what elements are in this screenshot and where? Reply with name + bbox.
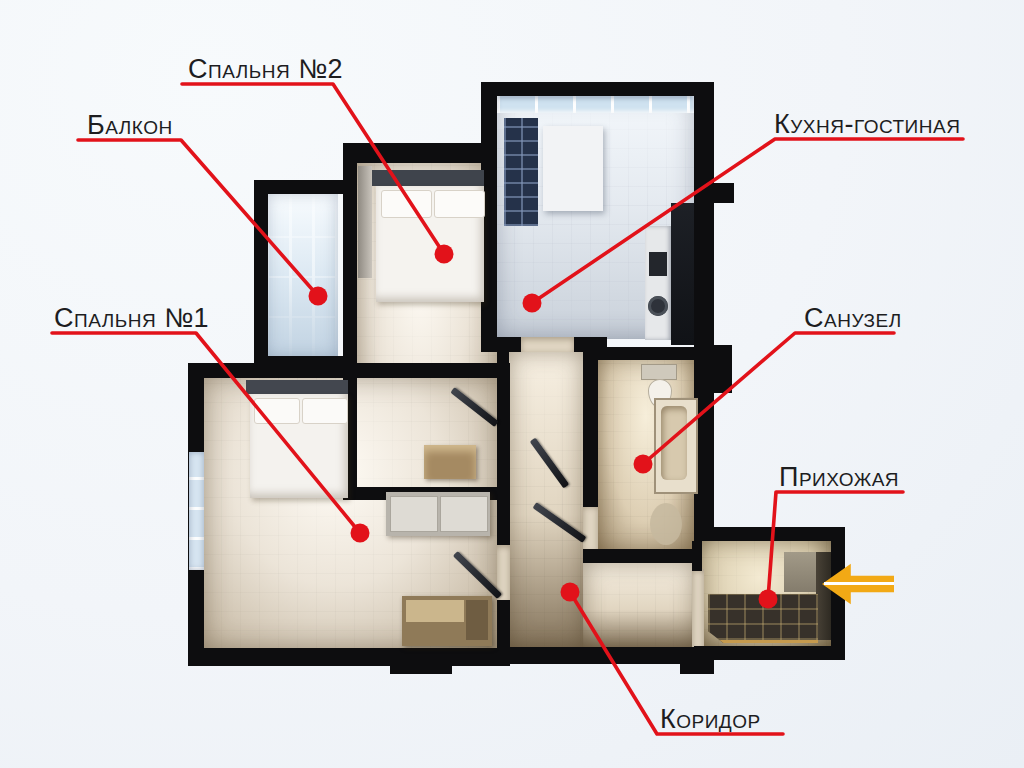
pillow bbox=[434, 190, 485, 218]
room-label-bedroom2: Спальня №2 bbox=[188, 55, 343, 83]
hall-closet bbox=[784, 552, 818, 592]
entrance-arrow-wrap bbox=[822, 562, 894, 606]
entrance-mat bbox=[708, 594, 818, 643]
entrance-arrow-stripe bbox=[824, 582, 894, 585]
wall-segment bbox=[694, 527, 845, 541]
sofa-cushion bbox=[440, 496, 488, 532]
wall-segment bbox=[343, 143, 493, 163]
floor-balcony bbox=[266, 192, 338, 358]
desk-side bbox=[466, 600, 488, 640]
wall-segment bbox=[712, 345, 732, 393]
desk-top bbox=[406, 600, 464, 622]
wall-segment bbox=[583, 347, 598, 507]
bath-rug bbox=[650, 503, 682, 545]
sofa-cushion bbox=[390, 496, 438, 532]
room-label-bedroom1: Спальня №1 bbox=[54, 304, 209, 332]
bench bbox=[424, 445, 476, 479]
kitchen-cabinet bbox=[504, 118, 538, 226]
room-label-kitchen: Кухня-гостиная bbox=[774, 110, 960, 138]
bathtub-basin bbox=[661, 406, 687, 480]
room-label-balcony: Балкон bbox=[87, 111, 173, 139]
wall-segment bbox=[692, 541, 702, 571]
washing-machine-door bbox=[648, 296, 668, 316]
pillow bbox=[302, 398, 348, 424]
wall-segment bbox=[254, 180, 268, 370]
doorway-bathroom bbox=[583, 505, 598, 551]
room-label-corridor: Коридор bbox=[660, 705, 761, 733]
wall-segment bbox=[188, 363, 510, 378]
bedroom1-window bbox=[189, 452, 204, 570]
doorway-kitchen bbox=[521, 337, 574, 352]
wall-segment bbox=[254, 180, 354, 194]
kitchen-table bbox=[543, 126, 603, 211]
bed-headboard bbox=[372, 170, 484, 186]
kitchen-window bbox=[497, 96, 694, 113]
washing-machine-panel bbox=[649, 252, 667, 276]
wall-segment bbox=[583, 549, 694, 563]
bed-headboard bbox=[246, 380, 348, 394]
floor-corridor bbox=[508, 350, 584, 649]
wall-segment bbox=[694, 646, 845, 660]
wall-segment bbox=[714, 183, 734, 203]
wall-segment bbox=[497, 378, 510, 545]
room-label-hallway: Прихожая bbox=[779, 463, 899, 491]
wall-segment bbox=[188, 648, 510, 666]
floor-corridor-east bbox=[583, 561, 696, 649]
wall-segment bbox=[497, 600, 510, 648]
pillow bbox=[381, 190, 432, 218]
wall-segment bbox=[481, 82, 714, 96]
wall-segment bbox=[497, 647, 694, 664]
wall-segment bbox=[680, 660, 714, 674]
wall-segment bbox=[390, 660, 452, 674]
wall-segment bbox=[590, 347, 714, 360]
wall-segment bbox=[483, 337, 521, 352]
pillow bbox=[254, 398, 300, 424]
room-label-bathroom: Санузел bbox=[804, 304, 902, 332]
doorway-entrance bbox=[692, 569, 704, 648]
tall-cabinet bbox=[671, 203, 694, 345]
wardrobe bbox=[358, 166, 372, 278]
washing-machine bbox=[645, 226, 671, 340]
toilet-tank bbox=[641, 364, 677, 380]
floor-plan-scene: Спальня №2 Балкон Кухня-гостиная Спальня… bbox=[0, 0, 1024, 768]
